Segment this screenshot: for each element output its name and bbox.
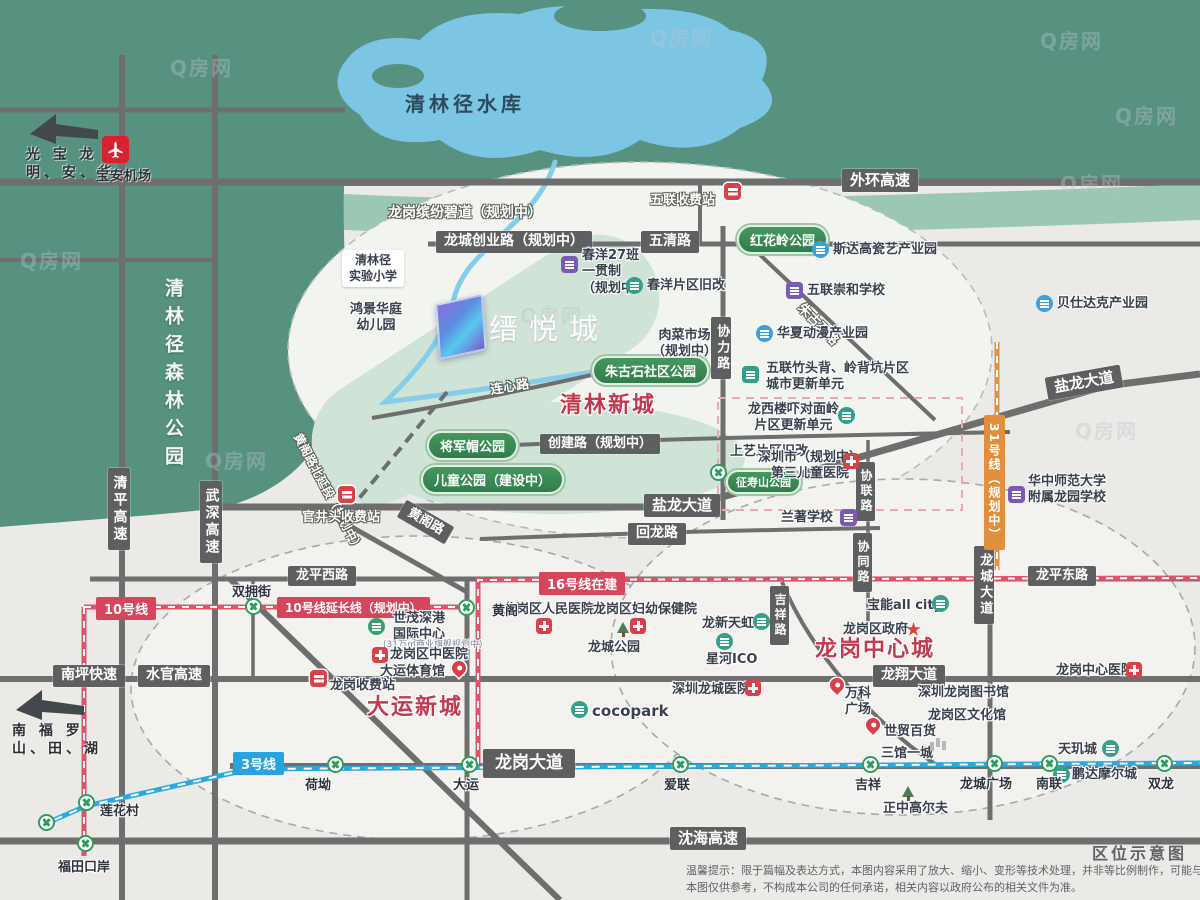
metro-line10-badge: 10号线 xyxy=(96,597,156,620)
mall-icon xyxy=(368,618,385,635)
station-heao: 荷坳 xyxy=(305,774,331,793)
station-heao-icon xyxy=(327,756,344,773)
poi-hongjing-kindergarten: 鸿景华庭 幼儿园 xyxy=(350,302,402,335)
poi-qinglinjing-primary-school: 清林径 实验小学 xyxy=(342,250,404,287)
poi-longcheng-hospital: 深圳龙城医院 xyxy=(672,682,750,698)
arrow-northwest-icon xyxy=(30,112,102,144)
station-lianhuacun: 莲花村 xyxy=(100,800,139,819)
renewal-icon xyxy=(626,277,643,294)
road-label-wuqing-rd: 五清路 xyxy=(641,231,699,253)
renewal-icon xyxy=(838,407,855,424)
industry-icon xyxy=(756,325,773,342)
station-terminus-icon xyxy=(38,814,55,831)
station-shuangyongjie: 双拥街 xyxy=(232,581,271,600)
station-futian-checkpoint-icon xyxy=(77,835,94,852)
road-label-longping-west: 龙平西路 xyxy=(288,566,356,586)
guanjingtou-toll-label: 官井头收费站 xyxy=(302,506,380,525)
poi-chunyang-renewal: 春洋片区旧改 xyxy=(647,278,725,294)
road-label-longcheng-ave: 龙城大道 xyxy=(974,546,994,624)
road-label-shenhai-expwy: 沈海高速 xyxy=(670,827,746,850)
mall-icon xyxy=(1102,740,1119,757)
disclaimer-line1: 温馨提示：限于篇幅及表达方式，本图内容采用了放大、缩小、变形等技术处理，并非等比… xyxy=(686,863,1200,880)
poi-market-planned: 肉菜市场 （规划中） xyxy=(652,328,717,361)
disclaimer-line2: 本图仅供参考，不构成本公司的任何承诺，相关内容以政府公布的相关文件为准。 xyxy=(686,880,1082,897)
poi-pengda-mall: 鹏达摩尔城 xyxy=(1072,767,1137,783)
station-jixiang-icon xyxy=(862,756,879,773)
industry-icon xyxy=(812,241,829,258)
mall-icon xyxy=(716,633,733,650)
poi-huaxia-anime-park: 华夏动漫产业园 xyxy=(777,326,868,342)
station-dayun-icon xyxy=(461,756,478,773)
park-children: 儿童公园（建设中） xyxy=(421,465,564,494)
reservoir-label: 清林径水库 xyxy=(405,88,525,117)
project-logo-icon xyxy=(435,294,486,360)
hospital-icon xyxy=(630,618,646,634)
road-label-longping-east: 龙平东路 xyxy=(1028,566,1096,586)
wulian-toll-icon xyxy=(724,183,741,200)
tree-icon xyxy=(901,786,915,802)
road-label-waihuan-expwy: 外环高速 xyxy=(842,169,918,192)
poi-beishidake-park: 贝仕达克产业园 xyxy=(1057,296,1148,312)
forest-label: 清林径森林公园 xyxy=(160,278,187,474)
airport-label: 宝安机场 xyxy=(96,165,152,184)
tree-icon xyxy=(616,622,630,638)
hospital-icon xyxy=(745,680,761,696)
station-shuangyongjie-icon xyxy=(245,598,262,615)
station-futian-checkpoint: 福田口岸 xyxy=(58,856,110,875)
school-icon xyxy=(840,509,857,526)
road-label-chuangjian-rd: 创建路（规划中） xyxy=(540,434,660,454)
poi-three-halls-one-city: 三馆一城 xyxy=(881,746,933,762)
school-icon xyxy=(1008,486,1025,503)
project-name: 缙悦城 xyxy=(489,306,609,348)
station-ailian-icon xyxy=(672,756,689,773)
mall-icon xyxy=(753,613,770,630)
guanjingtou-toll-icon xyxy=(338,486,355,503)
road-label-longxiang-ave: 龙翔大道 xyxy=(873,665,945,687)
wulian-toll-label: 五联收费站 xyxy=(650,189,715,208)
school-icon xyxy=(786,282,803,299)
station-dayun: 大运 xyxy=(453,774,479,793)
metro-line3-badge: 3号线 xyxy=(233,752,284,775)
compass-sw-line2: 山、田、湖 xyxy=(12,738,102,758)
poi-lanzhu-school: 兰著学校 xyxy=(781,510,833,526)
industry-icon xyxy=(1036,295,1053,312)
poi-baoneng-allcity: 宝能all city xyxy=(867,598,942,614)
road-label-yanlong-ave-west: 盐龙大道 xyxy=(644,494,720,517)
district-qinglin: 清林新城 xyxy=(560,392,656,420)
poi-district-government: 龙岗区政府 xyxy=(843,622,908,638)
station-nanlian-icon xyxy=(1041,755,1058,772)
road-label-huilong-rd: 回龙路 xyxy=(628,523,686,545)
road-label-longgang-ave: 龙岗大道 xyxy=(483,749,575,778)
road-label-longcheng-chuangye: 龙城创业路（规划中） xyxy=(436,231,592,253)
poi-shimao-department-store: 世贸百货 xyxy=(884,724,936,740)
poi-wulian-renewal-unit: 五联竹头背、岭背坑片区 城市更新单元 xyxy=(766,361,909,394)
road-label-binfen-greenway: 龙岗缤纷碧道（规划中） xyxy=(388,202,542,222)
poi-xinghe-ico: 星河ICO xyxy=(706,652,757,668)
station-longcheng-square: 龙城广场 xyxy=(960,773,1012,792)
location-map: Q房网 Q房网 Q房网 Q房网 Q房网 Q房网 Q房网 Q房网 Q房网 光 宝 … xyxy=(0,0,1200,900)
road-label-wushen-expwy: 武深高速 xyxy=(200,481,222,563)
station-lianhuacun-icon xyxy=(78,794,95,811)
station-ailian: 爱联 xyxy=(664,774,690,793)
hospital-icon xyxy=(1126,662,1142,678)
hospital-icon xyxy=(372,647,388,663)
station-longcheng-square-icon xyxy=(986,755,1003,772)
road-label-qingping-expwy: 清平高速 xyxy=(108,468,130,550)
station-shuanglong: 双龙 xyxy=(1148,773,1174,792)
station-zhengshoushan-icon xyxy=(710,464,727,481)
mall-icon xyxy=(571,701,588,718)
longgang-toll-label: 龙岗收费站 xyxy=(330,678,395,694)
poi-vanke-plaza: 万科 广场 xyxy=(845,686,871,719)
poi-shimao-center: 世茂深港 国际中心 xyxy=(393,611,445,644)
poi-zhengzhong-golf: 正中高尔夫 xyxy=(883,801,948,817)
road-label-jixiang-rd: 吉祥路 xyxy=(770,586,789,645)
station-jixiang: 吉祥 xyxy=(855,774,881,793)
poi-wulian-chonghe-school: 五联崇和学校 xyxy=(807,283,885,299)
poi-cocopark: cocopark xyxy=(592,702,669,721)
poi-longxi-renewal-unit: 龙西楼吓对面岭 片区更新单元 xyxy=(748,402,839,435)
metro-line31-badge: 31号线（规划中） xyxy=(984,415,1005,550)
poi-tianji-city: 天玑城 xyxy=(1058,742,1097,758)
road-label-shuiguan-expwy: 水官高速 xyxy=(138,665,210,687)
station-shuanglong-icon xyxy=(1156,755,1173,772)
buildings-icon xyxy=(930,735,950,751)
longgang-toll-icon xyxy=(310,670,327,687)
district-dayun: 大运新城 xyxy=(367,694,463,722)
compass-nw-line1: 光 宝 龙 xyxy=(26,144,98,164)
poi-longxin-tianhong: 龙新天虹 xyxy=(702,616,754,632)
poi-maternity-hospital: 龙岗区妇幼保健院 xyxy=(593,602,697,618)
poi-longgang-culture-center: 龙岗区文化馆 xyxy=(928,708,1006,724)
arrow-southwest-icon xyxy=(16,688,88,720)
airport-icon xyxy=(102,136,129,163)
station-huangge: 黄阁 xyxy=(492,600,518,619)
poi-sida-ceramics-park: 斯达高瓷艺产业园 xyxy=(833,242,937,258)
poi-huazhong-normal-school: 华中师范大学 附属龙园学校 xyxy=(1028,474,1106,507)
poi-dayun-gym: 大运体育馆 xyxy=(380,664,445,680)
park-jiangjunmao: 将军帽公园 xyxy=(427,431,518,460)
poi-longgang-central-hospital: 龙岗中心医院 xyxy=(1056,663,1134,679)
poi-longcheng-park: 龙城公园 xyxy=(588,640,640,656)
school-icon xyxy=(561,256,578,273)
mall-icon xyxy=(932,595,949,612)
road-label-xietong-rd: 协同路 xyxy=(853,533,872,592)
hospital-icon xyxy=(536,618,552,634)
hospital-icon xyxy=(843,453,859,469)
metro-line16-badge: 16号线在建 xyxy=(539,572,625,595)
map-title: 区位示意图 xyxy=(1092,840,1187,864)
poi-longgang-library: 深圳龙岗图书馆 xyxy=(918,685,1009,701)
district-longgang-center: 龙岗中心城 xyxy=(815,636,935,664)
compass-sw-line1: 南 福 罗 xyxy=(12,720,84,740)
station-nanlian: 南联 xyxy=(1036,773,1062,792)
renewal-icon xyxy=(742,366,759,383)
station-huangge-icon xyxy=(458,599,475,616)
road-label-nanping-expwy: 南坪快速 xyxy=(53,665,125,687)
